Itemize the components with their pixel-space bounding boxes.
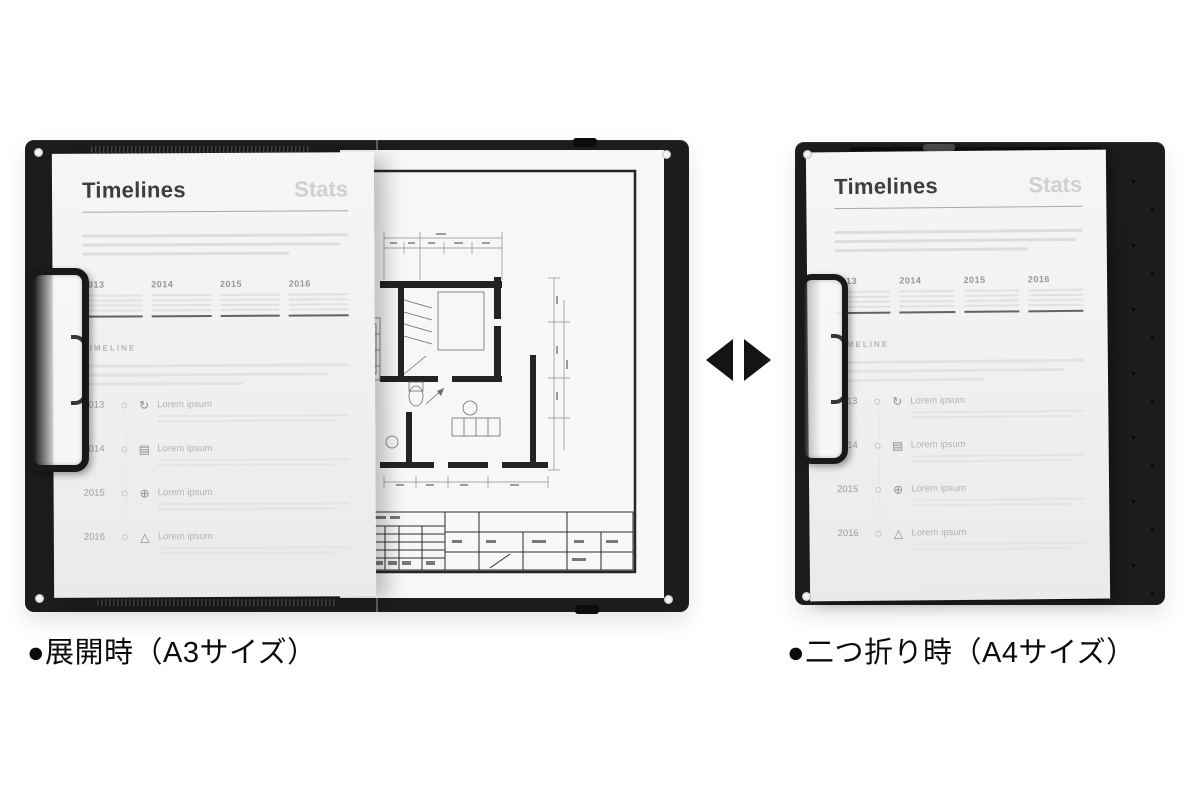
timeline-node xyxy=(118,531,132,557)
paper-clip xyxy=(27,268,89,472)
timeline-entry: 2016 △ Lorem ipsum xyxy=(84,530,350,557)
clipboard-open-a3: Timelines Stats 2013 2014 xyxy=(25,140,689,612)
timeline-entry: 2014 ▤ Lorem ipsum xyxy=(837,438,1085,466)
timeline-node xyxy=(117,443,131,469)
timeline-entry: 2013 ↻ Lorem ipsum xyxy=(836,394,1084,422)
year-column: 2015 xyxy=(220,279,280,317)
section-label: TIMELINE xyxy=(83,342,349,352)
timeline-entry: 2013 ↻ Lorem ipsum xyxy=(83,398,349,425)
timeline-list: 2013 ↻ Lorem ipsum 2014 ▤ Lorem ipsum xyxy=(836,394,1086,554)
timeline-node xyxy=(871,484,885,510)
snap-tab-top xyxy=(923,144,955,151)
refresh-icon: ↻ xyxy=(131,399,157,425)
presentation-icon: ▤ xyxy=(885,439,911,465)
ribbed-edge-bottom xyxy=(97,599,337,606)
year-column: 2014 xyxy=(151,279,211,317)
year-column: 2016 xyxy=(289,278,349,316)
year-columns: 2013 2014 2015 2016 xyxy=(82,278,348,317)
snap-tab-bottom xyxy=(575,605,599,614)
document-subtitle: Stats xyxy=(1028,172,1082,199)
corner-eyelet xyxy=(664,595,673,604)
timeline-node xyxy=(117,399,131,425)
header-rule xyxy=(82,210,348,212)
paper-clip xyxy=(798,274,848,464)
section-paragraph xyxy=(83,363,349,385)
header-rule xyxy=(834,206,1082,209)
floor-plan-drawing xyxy=(340,150,664,598)
document-title: Timelines xyxy=(82,177,186,203)
intro-paragraph xyxy=(835,229,1083,252)
year-column: 2013 xyxy=(82,279,142,317)
caption-a3: ●展開時（A3サイズ） xyxy=(27,629,317,671)
timeline-node xyxy=(871,440,885,466)
timeline-node xyxy=(871,528,885,554)
timeline-node xyxy=(870,396,884,422)
timeline-entry: 2016 △ Lorem ipsum xyxy=(837,526,1085,554)
snap-tab-top xyxy=(573,138,597,147)
clipboard-folded-a4: Timelines Stats 2013 2014 xyxy=(795,142,1165,605)
marker-icon: △ xyxy=(885,527,911,553)
year-column: 2016 xyxy=(1028,274,1084,313)
timeline-list: 2013 ↻ Lorem ipsum 2014 ▤ Lorem ipsum xyxy=(83,398,350,557)
timeline-node xyxy=(118,487,132,513)
year-column: 2015 xyxy=(964,274,1020,313)
year-column: 2014 xyxy=(899,275,955,314)
section-label: TIMELINE xyxy=(836,338,1084,349)
section-paragraph xyxy=(836,359,1084,382)
globe-icon: ⊕ xyxy=(132,487,158,513)
floor-plan-page xyxy=(340,150,664,598)
vent-holes xyxy=(1151,208,1154,211)
timelines-page-a4: Timelines Stats 2013 2014 xyxy=(806,150,1110,602)
presentation-icon: ▤ xyxy=(131,443,157,469)
product-comparison-photo: Timelines Stats 2013 2014 xyxy=(0,0,1200,800)
left-arrow-icon xyxy=(706,339,733,381)
timeline-entry: 2015 ⊕ Lorem ipsum xyxy=(837,482,1085,510)
timeline-entry: 2015 ⊕ Lorem ipsum xyxy=(84,486,350,513)
corner-eyelet xyxy=(803,150,812,159)
corner-eyelet xyxy=(662,150,671,159)
caption-a4: ●二つ折り時（A4サイズ） xyxy=(787,629,1136,671)
vent-holes xyxy=(1132,180,1135,183)
globe-icon: ⊕ xyxy=(885,483,911,509)
timelines-page-a3: Timelines Stats 2013 2014 xyxy=(52,152,376,598)
corner-eyelet xyxy=(802,592,811,601)
marker-icon: △ xyxy=(132,531,158,557)
refresh-icon: ↻ xyxy=(884,395,910,421)
document-title: Timelines xyxy=(834,173,938,199)
right-arrow-icon xyxy=(744,339,771,381)
intro-paragraph xyxy=(82,233,348,255)
timeline-entry: 2014 ▤ Lorem ipsum xyxy=(83,442,349,469)
document-subtitle: Stats xyxy=(294,176,348,202)
compare-arrows xyxy=(706,339,771,381)
corner-eyelet xyxy=(35,594,44,603)
corner-eyelet xyxy=(34,148,43,157)
year-columns: 2013 2014 2015 2016 xyxy=(835,274,1083,314)
